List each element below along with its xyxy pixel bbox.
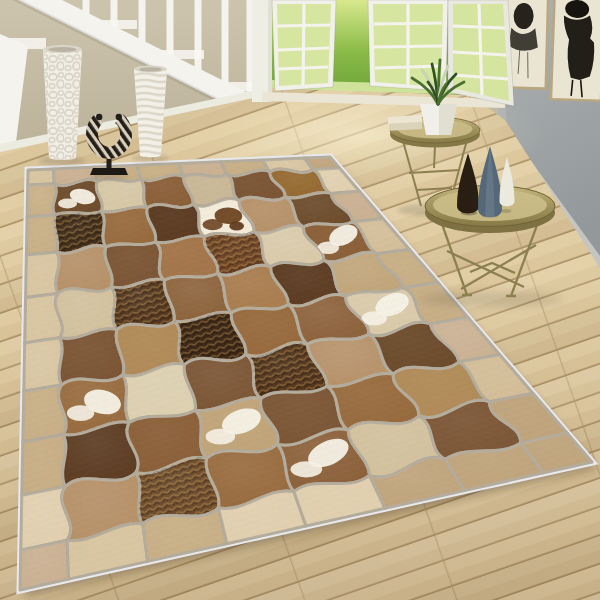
sculpture-head	[116, 114, 122, 120]
table-shadow	[420, 291, 564, 307]
white-planter	[420, 104, 457, 135]
wall-art-right	[551, 0, 600, 101]
door-muntin	[375, 66, 441, 68]
door-muntin	[374, 46, 442, 47]
door-muntin	[374, 23, 442, 24]
sculpture-base	[90, 168, 128, 175]
door-casing-shade	[268, 0, 272, 102]
living-room-product-photo	[0, 0, 600, 600]
sculpture-head	[96, 114, 102, 120]
door-panel-left	[272, 0, 336, 91]
door-muntin	[277, 25, 330, 26]
door-muntin	[453, 26, 505, 28]
pebble-vase-opening	[49, 47, 77, 52]
pebble-vase-texture	[43, 46, 82, 160]
ribbed-vase-opening	[139, 67, 162, 71]
scene-svg	[0, 0, 600, 600]
door-muntin	[278, 67, 328, 69]
vase-reflection	[501, 209, 512, 213]
stacked-books	[388, 115, 422, 131]
door-panel-right-2	[448, 0, 514, 106]
door-muntin	[303, 4, 304, 85]
door-muntin	[278, 48, 329, 50]
stair-baluster	[222, 0, 229, 94]
